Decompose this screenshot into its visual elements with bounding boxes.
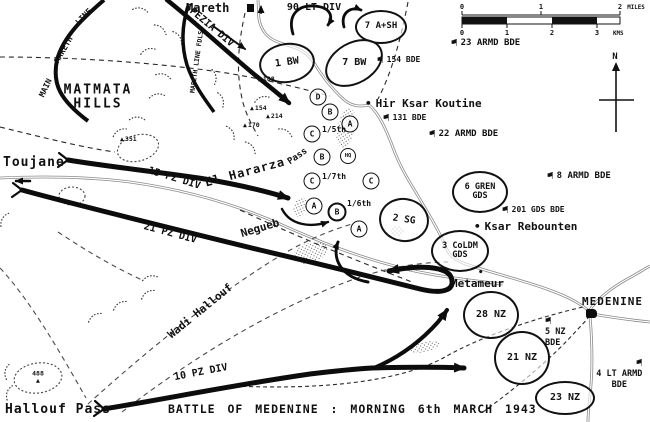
scale-miles-2: 2: [618, 3, 622, 11]
unit-1-bw-label: 1 BW: [274, 56, 299, 70]
company-c3: C: [363, 173, 380, 190]
flag-201-gds-bde: ⚑201 GDS BDE: [502, 205, 565, 215]
scale-kms-2: 2: [550, 29, 554, 37]
hill-icon: ▲: [243, 122, 247, 129]
unit-7-bw-label: 7 BW: [342, 58, 366, 69]
flag-icon: ⚑: [383, 113, 390, 123]
flag-icon: ⚑: [429, 129, 436, 139]
town-dot-icon: •: [365, 98, 372, 109]
flag-icon: ⚑: [451, 38, 458, 48]
unit-6-gren-gds: 6 GREN GDS: [452, 171, 508, 213]
hill-351: ▲351: [120, 136, 137, 143]
hill-214: ▲214: [266, 113, 283, 120]
flag-4-lt-armd-bde-line1: 4 LT ARMD: [596, 369, 642, 379]
scale-kms-1: 1: [505, 29, 509, 37]
flag-4-lt-armd-bde: ⚑ 4 LT ARMD BDE: [596, 358, 643, 390]
company-c2-label: C: [310, 177, 315, 186]
company-c1: C: [304, 126, 321, 143]
unit-2-sg-label: 2 SG: [392, 213, 416, 226]
hill-170: ▲170: [243, 122, 260, 129]
scale-kms-unit: KMS: [613, 31, 624, 37]
flag-154-bde: ⚑154 BDE: [377, 55, 420, 65]
hill-488: 488 ▲: [32, 371, 44, 384]
hill-154: ▲154: [250, 105, 267, 112]
town-hir-ksar-koutine-label: Hir Ksar Koutine: [376, 98, 482, 109]
medenine-town-marker: [586, 309, 597, 318]
scale-miles-unit: MILES: [627, 5, 645, 11]
flag-icon: ⚑: [545, 316, 552, 326]
mareth-town-marker: [247, 4, 254, 12]
hill-icon: ▲: [120, 136, 124, 143]
scale-kms-3: 3: [595, 29, 599, 37]
flag-154-bde-label: 154 BDE: [387, 55, 421, 64]
flag-icon: ⚑: [547, 171, 554, 181]
flag-22-armd-bde-label: 22 ARMD BDE: [439, 129, 499, 139]
unit-23-nz: 23 NZ: [535, 381, 595, 415]
town-ksar-rebounten: • Ksar Rebounten: [474, 221, 577, 232]
flag-23-armd-bde: ⚑23 ARMD BDE: [451, 38, 520, 48]
company-a2: A: [306, 198, 323, 215]
town-hir-ksar-koutine: • Hir Ksar Koutine: [365, 98, 482, 109]
unit-28-nz: 28 NZ: [463, 291, 519, 339]
region-matmata-hills: HILLS: [73, 98, 122, 111]
hachures: [0, 7, 293, 401]
company-hq: HQ: [340, 148, 356, 164]
flag-23-armd-bde-label: 23 ARMD BDE: [461, 38, 521, 48]
unit-7-ash-label: 7 A+SH: [365, 22, 398, 32]
company-b3-label: B: [335, 208, 340, 217]
company-c1-label: C: [310, 130, 315, 139]
unit-23-nz-label: 23 NZ: [550, 393, 580, 404]
unit-21-nz-label: 21 NZ: [507, 353, 537, 364]
company-b3-suffix: 1/6th: [347, 200, 371, 208]
scale-kms-0: 0: [460, 29, 464, 37]
scale-miles-0: 0: [460, 3, 464, 11]
flag-4-lt-armd-bde-line2: BDE: [612, 380, 627, 390]
flag-5-nz-bde: ⚑ 5 NZ BDE: [545, 316, 565, 348]
flag-5-nz-bde-line2: BDE: [545, 338, 560, 348]
unit-6-gren-line2: GDS: [472, 192, 487, 201]
region-matmata: MATMATA: [64, 84, 133, 97]
scale-miles-1: 1: [539, 3, 543, 11]
unit-3-coldm-line2: GDS: [452, 251, 467, 260]
company-a3-label: A: [357, 225, 362, 234]
company-b1-label: B: [328, 108, 333, 117]
company-hq-label: HQ: [345, 153, 352, 159]
company-a2-label: A: [312, 202, 317, 211]
flag-8-armd-bde: ⚑8 ARMD BDE: [547, 171, 611, 181]
flag-131-bde: ⚑131 BDE: [383, 113, 426, 123]
hill-214-label: 214: [271, 113, 283, 120]
hill-icon: ▲: [36, 377, 40, 384]
axis-90-lt-div: 90 LT DIV: [287, 3, 341, 13]
flag-22-armd-bde: ⚑22 ARMD BDE: [429, 129, 498, 139]
company-c2-suffix: 1/7th: [322, 173, 346, 181]
company-b2-label: B: [320, 153, 325, 162]
company-a3: A: [351, 221, 368, 238]
company-c1-suffix: 1/5th: [322, 126, 346, 134]
hill-351-label: 351: [125, 136, 137, 143]
hill-icon: ▲: [258, 76, 262, 83]
flag-201-gds-bde-label: 201 GDS BDE: [512, 205, 565, 214]
north-arrow: N: [599, 52, 634, 132]
company-d: D: [310, 89, 327, 106]
flag-icon: ⚑: [502, 205, 509, 215]
town-dot-icon: •: [474, 221, 481, 232]
company-b3: B: [328, 203, 347, 222]
town-toujane: Toujane: [3, 156, 65, 169]
flag-icon: ⚑: [636, 358, 643, 368]
hill-188-label: 188: [263, 76, 275, 83]
unit-3-coldm-gds: 3 CoLDM GDS: [431, 230, 489, 272]
company-c2: C: [304, 173, 321, 190]
flag-8-armd-bde-label: 8 ARMD BDE: [557, 171, 611, 181]
medenine-battle-map: 0 1 2 MILES 0 1 2 3 KMS N Mareth Toujane…: [0, 0, 650, 422]
hill-icon: ▲: [250, 105, 254, 112]
company-a1-label: A: [348, 120, 353, 129]
town-ksar-rebounten-label: Ksar Rebounten: [485, 221, 578, 232]
map-caption: BATTLE OF MEDENINE : MORNING 6th MARCH 1…: [168, 404, 537, 416]
company-d-label: D: [316, 93, 321, 102]
town-medenine: MEDENINE: [582, 296, 643, 307]
hill-icon: ▲: [266, 113, 270, 120]
town-hallouf-pass: Hallouf Pass: [5, 403, 111, 416]
hill-154-label: 154: [255, 105, 267, 112]
unit-21-nz: 21 NZ: [494, 331, 550, 385]
north-label: N: [612, 52, 617, 62]
flag-131-bde-label: 131 BDE: [393, 113, 427, 122]
flag-icon: ⚑: [377, 55, 384, 65]
company-b2: B: [314, 149, 331, 166]
scale-bar: 0 1 2 MILES 0 1 2 3 KMS: [460, 3, 645, 37]
company-b1: B: [322, 104, 339, 121]
hill-170-label: 170: [248, 122, 260, 129]
hill-188: ▲188: [258, 76, 275, 83]
company-c3-label: C: [369, 177, 374, 186]
unit-28-nz-label: 28 NZ: [476, 310, 506, 321]
flag-5-nz-bde-line1: 5 NZ: [545, 327, 565, 337]
town-metameur: Metameur: [451, 278, 504, 289]
